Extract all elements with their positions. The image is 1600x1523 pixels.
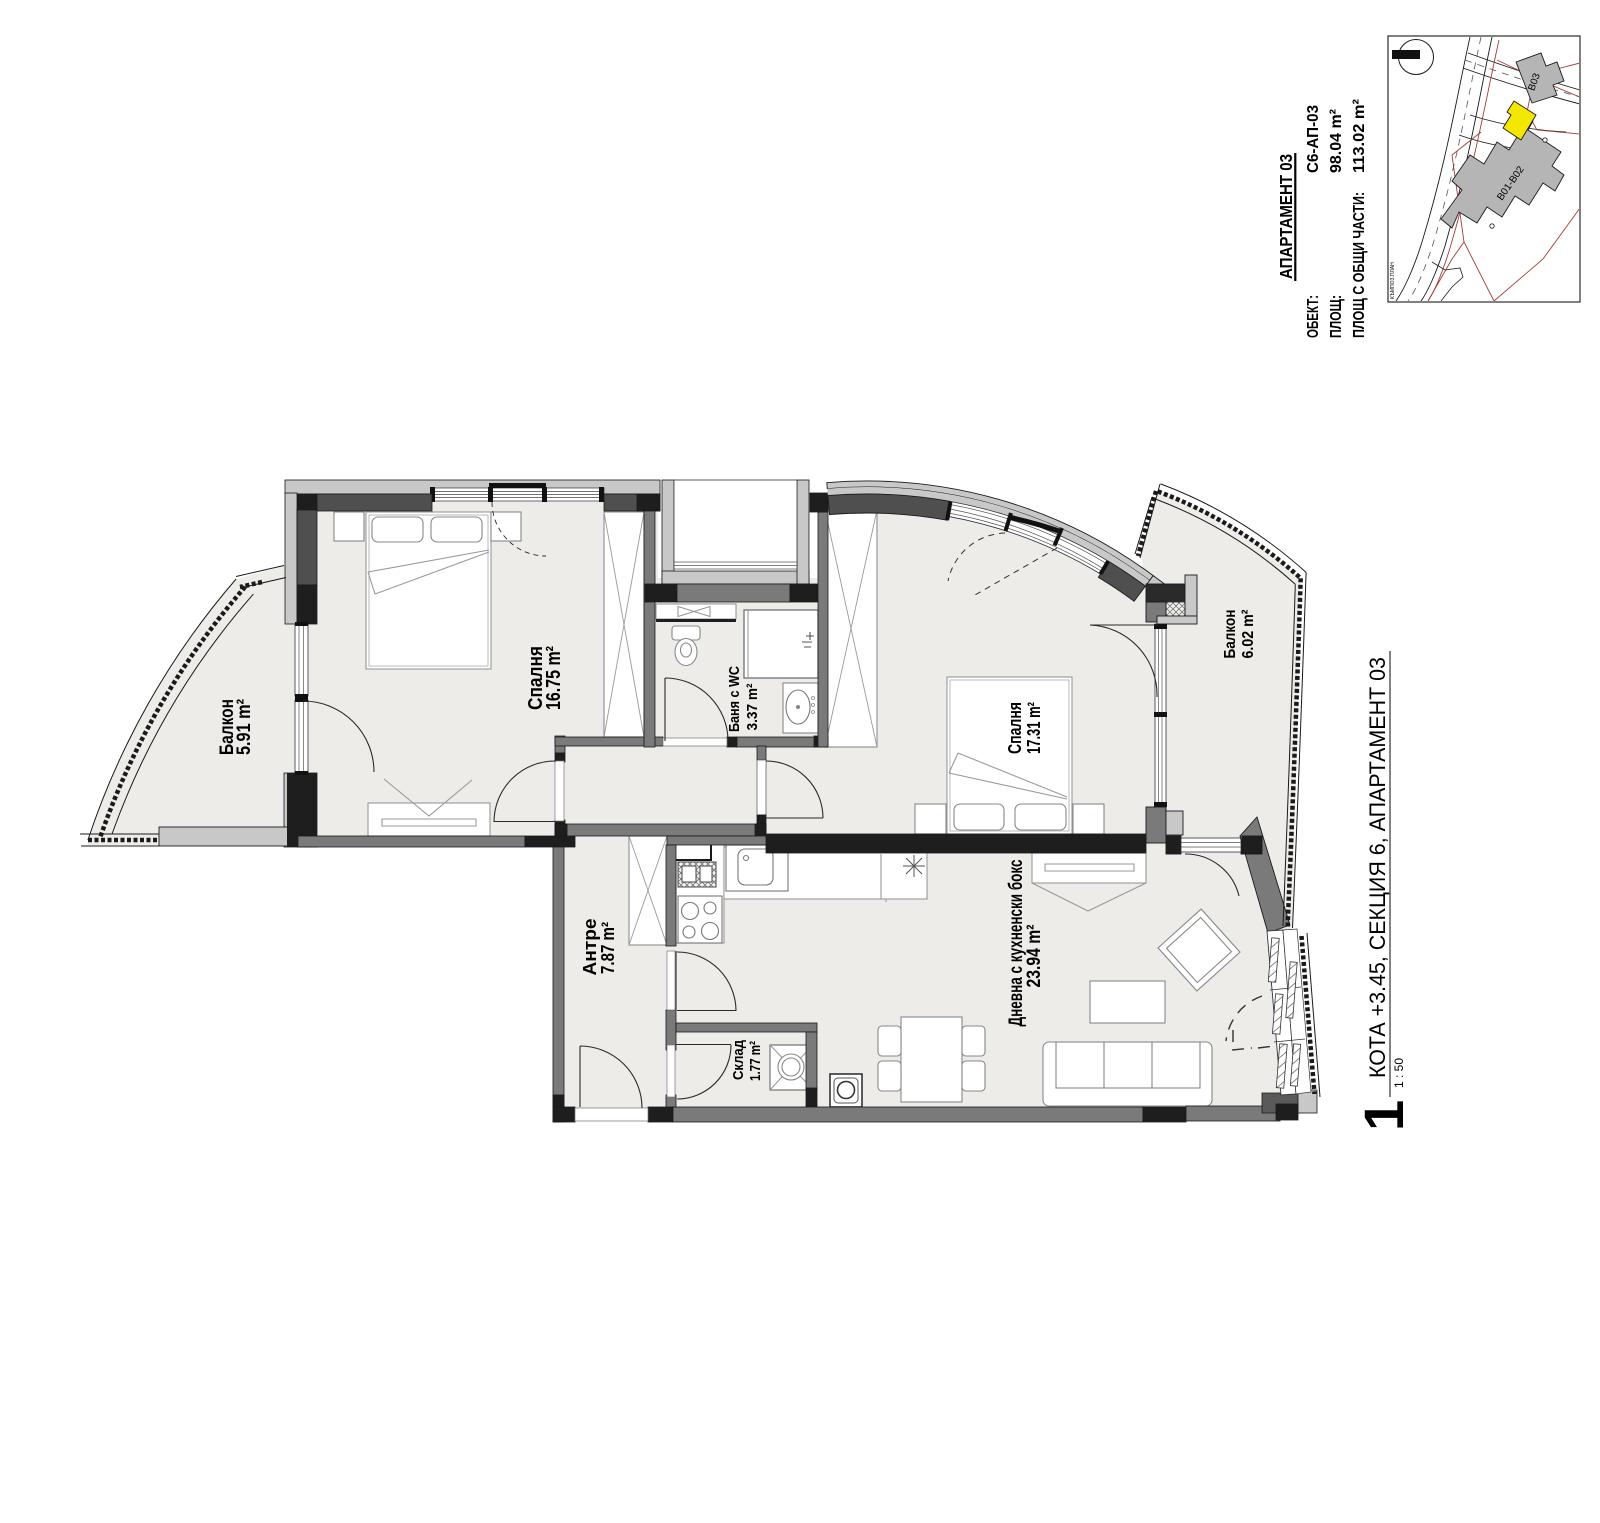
- svg-text:1.77 m²: 1.77 m²: [747, 1041, 764, 1081]
- svg-text:3.37 m²: 3.37 m²: [744, 684, 761, 731]
- svg-text:113.02 m²: 113.02 m²: [1351, 99, 1368, 173]
- svg-text:98.04 m²: 98.04 m²: [1328, 109, 1345, 173]
- svg-text:5.91 m²: 5.91 m²: [234, 699, 255, 755]
- svg-text:Антре: Антре: [580, 919, 600, 976]
- svg-text:АПАРТАМЕНТ 03: АПАРТАМЕНТ 03: [1276, 154, 1296, 279]
- svg-text:1: 1: [1352, 1100, 1415, 1131]
- svg-text:7.87 m²: 7.87 m²: [598, 922, 618, 974]
- svg-text:ПЛОЩ:: ПЛОЩ:: [1328, 295, 1345, 338]
- svg-text:ОБЕКТ:: ОБЕКТ:: [1305, 295, 1322, 338]
- svg-text:Баня с WC: Баня с WC: [726, 666, 743, 732]
- svg-text:Спалня: Спалня: [1005, 702, 1025, 754]
- svg-text:Балкон: Балкон: [1222, 610, 1239, 659]
- svg-text:КОТА +3.45, СЕКЦИЯ 6, АПАРТАМЕ: КОТА +3.45, СЕКЦИЯ 6, АПАРТАМЕНТ 03: [1365, 657, 1390, 1078]
- svg-text:Склад: Склад: [730, 1040, 747, 1080]
- svg-text:16.75 m²: 16.75 m²: [543, 646, 565, 710]
- svg-text:С6-АП-03: С6-АП-03: [1305, 105, 1322, 173]
- svg-text:17.31 m²: 17.31 m²: [1024, 702, 1044, 754]
- svg-text:1 : 50: 1 : 50: [1392, 1058, 1406, 1088]
- svg-text:КЪМПОЗ.ПЛАН: КЪМПОЗ.ПЛАН: [1390, 262, 1396, 299]
- svg-text:6.02 m²: 6.02 m²: [1240, 610, 1257, 659]
- svg-text:23.94 m²: 23.94 m²: [1024, 925, 1045, 988]
- svg-text:ПЛОЩ С ОБЩИ ЧАСТИ:: ПЛОЩ С ОБЩИ ЧАСТИ:: [1351, 192, 1368, 338]
